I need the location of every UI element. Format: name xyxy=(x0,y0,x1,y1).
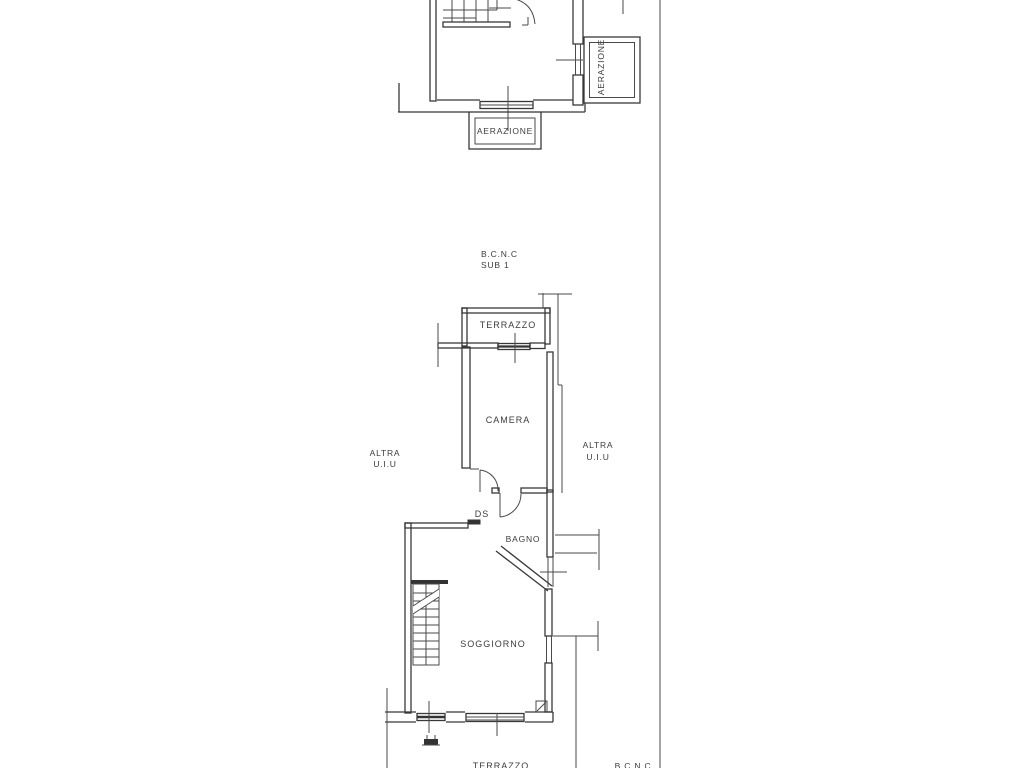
threshold-icon xyxy=(468,520,481,525)
label-aerazione-bottom: AERAZIONE xyxy=(477,126,533,136)
window-icon xyxy=(540,557,567,587)
room-terrazzo-top: TERRAZZO xyxy=(438,308,550,367)
label-terrazzo-bottom: TERRAZZO xyxy=(473,761,530,768)
room-camera: CAMERA xyxy=(462,347,553,492)
label-camera: CAMERA xyxy=(486,415,531,425)
label-altra-right-2: U.I.U xyxy=(586,452,609,462)
main-block: TERRAZZO CAMERA DS xyxy=(385,293,599,768)
label-altra-left-2: U.I.U xyxy=(373,459,396,469)
aerazione-shaft-right: AERAZIONE xyxy=(584,37,640,103)
wall-bottom-top-block xyxy=(398,83,585,112)
floor-plan-page: AERAZIONE AERAZIONE B.C.N.C SUB 1 ALTRA xyxy=(0,0,1024,768)
label-terrazzo-top: TERRAZZO xyxy=(480,320,537,330)
staircase-lower-icon xyxy=(411,580,448,665)
door-arc-icon xyxy=(500,493,521,517)
room-bagno: BAGNO xyxy=(506,490,567,587)
door-arc-icon xyxy=(480,470,498,492)
label-soggiorno: SOGGIORNO xyxy=(460,639,526,649)
window-icon xyxy=(556,44,583,75)
wall xyxy=(521,488,547,493)
party-wall-ticks xyxy=(555,529,599,570)
window-icon xyxy=(480,86,533,131)
label-bcnc-top-1: B.C.N.C xyxy=(481,249,518,259)
wall xyxy=(573,75,583,105)
outer-boundary-right xyxy=(558,294,562,493)
door-sill-icon xyxy=(498,333,530,363)
aerazione-shaft-bottom: AERAZIONE xyxy=(469,112,541,149)
wall xyxy=(443,22,510,27)
room-ds: DS xyxy=(468,469,499,525)
floor-plan-canvas: AERAZIONE AERAZIONE B.C.N.C SUB 1 ALTRA xyxy=(0,0,1024,768)
label-altra-left-1: ALTRA xyxy=(370,448,401,458)
label-aerazione-right: AERAZIONE xyxy=(596,39,606,95)
diagonal-wall xyxy=(496,546,552,591)
wall xyxy=(573,0,583,44)
room-soggiorno: SOGGIORNO xyxy=(385,523,598,768)
window-icon xyxy=(465,711,525,737)
label-bagno: BAGNO xyxy=(506,534,541,544)
window-icon xyxy=(416,701,446,733)
top-block: AERAZIONE AERAZIONE xyxy=(398,0,640,149)
vent-icon xyxy=(422,735,440,745)
label-bcnc-bottom: B.C.N.C xyxy=(615,761,652,768)
staircase-upper-icon xyxy=(443,0,497,22)
label-ds: DS xyxy=(475,509,490,519)
label-bcnc-top-2: SUB 1 xyxy=(481,260,510,270)
wall xyxy=(430,0,436,101)
window-icon xyxy=(547,636,552,663)
door-arc-icon xyxy=(489,0,535,25)
label-altra-right-1: ALTRA xyxy=(583,440,614,450)
